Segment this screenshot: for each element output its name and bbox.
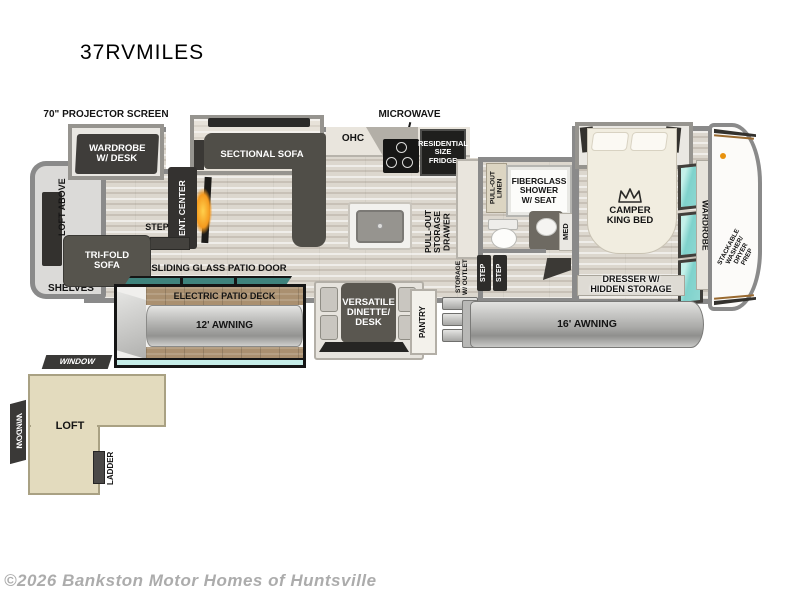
watermark: ©2026 Bankston Motor Homes of Huntsville — [4, 572, 384, 590]
ladder-label: LADDER — [104, 447, 119, 489]
slideout-roof-bar — [208, 118, 310, 127]
step-1-label: STEP — [477, 255, 491, 291]
awning-16-label: 16' AWNING — [470, 301, 704, 348]
patio-deck-label: ELECTRIC PATIO DECK — [146, 289, 303, 304]
pullout-linen-label: PULL-OUT LINEN — [486, 163, 507, 213]
step-2-label: STEP — [493, 255, 507, 291]
storage-outlet-label: STORAGE W/ OUTLET — [455, 251, 478, 303]
window-top-label: WINDOW — [42, 355, 113, 369]
sectional-sofa-label: SECTIONAL SOFA — [206, 150, 318, 160]
pillow-icon — [591, 132, 630, 151]
dinette-chair-icon — [320, 315, 338, 340]
pillow-icon — [630, 132, 669, 151]
loft-label: LOFT — [48, 421, 92, 433]
step-platform — [150, 237, 190, 250]
slide-window-icon — [194, 140, 204, 170]
entry-mat — [319, 342, 409, 352]
burner-icon — [402, 157, 413, 168]
king-bed-label: CAMPER KING BED — [596, 206, 664, 227]
loft-area — [28, 374, 166, 427]
stove-icon — [383, 139, 419, 173]
wardrobe-desk-label: WARDROBE W/ DESK — [75, 134, 159, 174]
dresser-label: DRESSER W/ HIDDEN STORAGE — [571, 275, 691, 294]
loft-above-label: LOFT ABOVE — [58, 170, 78, 244]
floorplan-page: 37RVMILES 70" PROJECTOR SCREEN MICROWAVE… — [0, 0, 800, 600]
ohc-label: OHC — [332, 134, 374, 145]
window-side-label: WINDOW — [10, 400, 26, 464]
bath-wall-top — [478, 157, 578, 162]
bath-recess-patch — [470, 122, 574, 158]
deck-window-strip — [117, 358, 303, 365]
burner-icon — [396, 142, 407, 153]
awning-12-label: 12' AWNING — [146, 305, 303, 347]
loft-area-lower — [28, 425, 100, 495]
shower-label: FIBERGLASS SHOWER W/ SEAT — [506, 165, 572, 217]
projector-screen-label: 70" PROJECTOR SCREEN — [40, 110, 172, 121]
pantry-label: PANTRY — [412, 291, 435, 353]
deck-board-bottom — [146, 347, 303, 358]
burner-icon — [386, 157, 397, 168]
microwave-label: MICROWAVE — [362, 110, 457, 121]
vanity-sink-icon — [536, 218, 557, 236]
wall-recess-patch — [166, 123, 192, 169]
bath-wall-bottom — [482, 249, 546, 253]
step-label: STEP — [136, 223, 178, 233]
sliding-door-label: SLIDING GLASS PATIO DOOR — [148, 264, 290, 274]
cap-light-icon — [720, 153, 726, 159]
model-title: 37RVMILES — [80, 42, 300, 65]
med-label: MED — [559, 215, 573, 249]
crown-icon — [617, 187, 643, 205]
dinette-chair-icon — [320, 287, 338, 312]
dinette-label: VERSATILE DINETTE/ DESK — [341, 283, 396, 343]
faucet-icon — [377, 223, 383, 229]
toilet-bowl-icon — [491, 228, 517, 249]
